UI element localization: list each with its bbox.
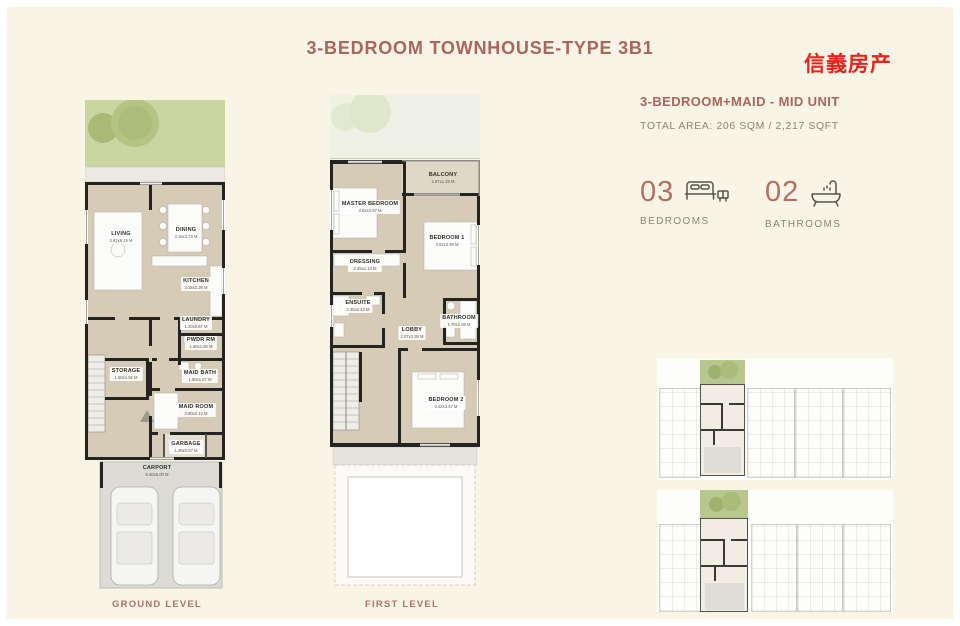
neighbor-unit-outline bbox=[795, 388, 843, 478]
highlighted-unit-plan bbox=[700, 518, 748, 612]
room-label-carport: CARPORT5.40x5.00 M bbox=[141, 464, 174, 478]
neighbor-unit-outline bbox=[843, 524, 891, 612]
ground-level-caption: GROUND LEVEL bbox=[112, 599, 202, 610]
neighbor-unit-outline bbox=[747, 388, 795, 478]
room-label-bedroom-1: BEDROOM 13.02x3.49 M bbox=[427, 234, 466, 248]
room-label-bedroom-2: BEDROOM 23.02x3.47 M bbox=[426, 396, 465, 410]
total-area-text: TOTAL AREA: 206 SQM / 2,217 SQFT bbox=[640, 120, 839, 132]
bedrooms-stat: 03 BEDROOMS bbox=[640, 178, 730, 227]
ground-plan-drawing bbox=[85, 580, 225, 597]
neighbor-unit-outline bbox=[659, 388, 701, 478]
first-level-caption: FIRST LEVEL bbox=[365, 599, 439, 610]
bathrooms-label: BATHROOMS bbox=[765, 219, 843, 230]
bathtub-icon bbox=[809, 178, 843, 213]
highlighted-unit-garden bbox=[700, 360, 745, 384]
room-label-bathroom: BATHROOM1.70x2.05 M bbox=[440, 314, 478, 328]
bedrooms-count: 03 bbox=[640, 178, 674, 207]
room-label-maid-bath: MAID BATH1.80x1.67 M bbox=[182, 369, 218, 383]
room-label-garbage: GARBAGE1.39x0.57 M bbox=[169, 440, 203, 454]
room-label-pwdr-rm: PWDR RM1.60x1.80 M bbox=[185, 336, 217, 350]
neighbor-unit-outline bbox=[797, 524, 843, 612]
neighbor-unit-outline bbox=[751, 524, 797, 612]
room-label-living: LIVING3.62x6.19 M bbox=[107, 230, 134, 244]
unit-type-heading: 3-BEDROOM+MAID - MID UNIT bbox=[640, 94, 840, 109]
bedrooms-label: BEDROOMS bbox=[640, 216, 730, 227]
room-label-dressing: DRESSING2.45x1.13 M bbox=[348, 258, 382, 272]
highlighted-unit-garden bbox=[700, 490, 748, 518]
brochure-page: 3-BEDROOM TOWNHOUSE-TYPE 3B1 信義房产 3-BEDR… bbox=[0, 0, 960, 626]
room-label-dining: DINING3.15x2.73 M bbox=[172, 226, 199, 240]
bed-icon bbox=[684, 178, 730, 210]
first-plan-drawing bbox=[330, 577, 480, 594]
location-thumbnail-2[interactable] bbox=[657, 490, 893, 612]
room-label-kitchen: KITCHEN3.15x2.39 M bbox=[181, 277, 211, 291]
room-label-master-bedroom: MASTER BEDROOM3.62x3.57 M bbox=[340, 200, 400, 214]
agency-watermark: 信義房产 bbox=[804, 48, 954, 78]
room-label-lobby: LOBBY2.07x2.39 M bbox=[398, 326, 425, 340]
room-label-ensuite: ENSUITE2.45x2.42 M bbox=[343, 299, 372, 313]
room-label-balcony: BALCONY2.87x1.45 M bbox=[427, 171, 460, 185]
bathrooms-stat: 02 BATHROOMS bbox=[765, 178, 843, 230]
location-thumbnail-1[interactable] bbox=[657, 358, 893, 480]
highlighted-unit-plan bbox=[700, 384, 745, 476]
floor-plan-first bbox=[330, 95, 480, 590]
neighbor-unit-outline bbox=[659, 524, 701, 612]
bathrooms-count: 02 bbox=[765, 178, 799, 207]
room-label-maid-room: MAID ROOM3.60x2.12 M bbox=[177, 403, 216, 417]
neighbor-unit-outline bbox=[843, 388, 891, 478]
room-label-storage: STORAGE1.50x1.92 M bbox=[110, 367, 143, 381]
room-label-laundry: LAUNDRY1.20x0.67 M bbox=[180, 316, 212, 330]
